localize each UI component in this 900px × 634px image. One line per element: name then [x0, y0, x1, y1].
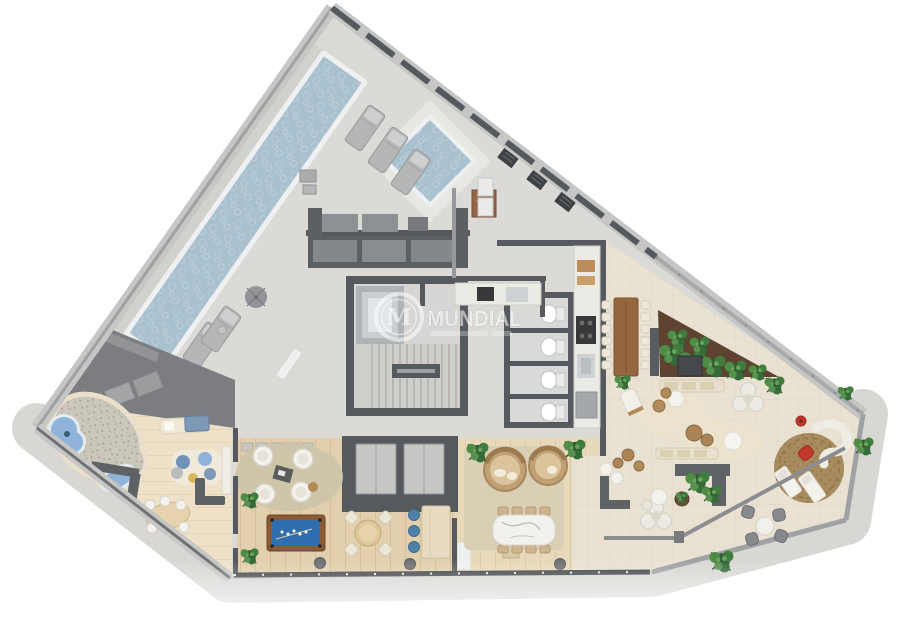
fridge — [576, 392, 597, 418]
pouf — [686, 425, 702, 441]
armchair — [255, 484, 275, 504]
bar-stool — [409, 510, 420, 521]
grill — [678, 356, 702, 376]
staircase — [354, 344, 460, 408]
tagline-bar — [492, 331, 512, 336]
bar-stool — [409, 542, 420, 553]
wicker-daybed — [484, 449, 526, 491]
side-table — [724, 432, 742, 450]
kids-zone-wall — [233, 428, 238, 574]
armchair — [291, 482, 311, 502]
play-mat — [160, 415, 210, 434]
wall-bench — [222, 446, 231, 494]
cutting-board — [577, 276, 595, 285]
billiards-table — [267, 515, 325, 551]
tv-wall — [650, 328, 659, 376]
armchair — [253, 446, 273, 466]
pool-drain — [64, 431, 70, 437]
cooktop — [477, 287, 494, 301]
logo-letter: M — [386, 304, 411, 331]
cooktop — [576, 316, 596, 344]
cutting-board — [577, 260, 595, 272]
deck-vent — [300, 170, 316, 182]
brand-text: MUNDIAL — [427, 306, 522, 331]
deck-vent — [303, 185, 316, 194]
toy-cabinet — [185, 415, 210, 431]
armchair — [293, 449, 313, 469]
wood-stool — [653, 400, 665, 412]
sink — [506, 287, 528, 302]
rooftop-floorplan: M MUNDIAL — [0, 0, 900, 634]
elevator-bank — [342, 436, 458, 512]
parasol — [245, 286, 267, 308]
bar-stool — [409, 526, 420, 537]
wood-stool — [661, 388, 671, 398]
bar-counter — [409, 506, 451, 558]
wicker-daybed — [529, 447, 567, 485]
floorplan-image: M MUNDIAL — [0, 0, 900, 634]
pouf — [308, 482, 318, 492]
pouf — [701, 434, 713, 446]
side-table — [218, 326, 226, 334]
tagline-bar — [430, 331, 488, 336]
bottom-fade — [0, 560, 900, 634]
